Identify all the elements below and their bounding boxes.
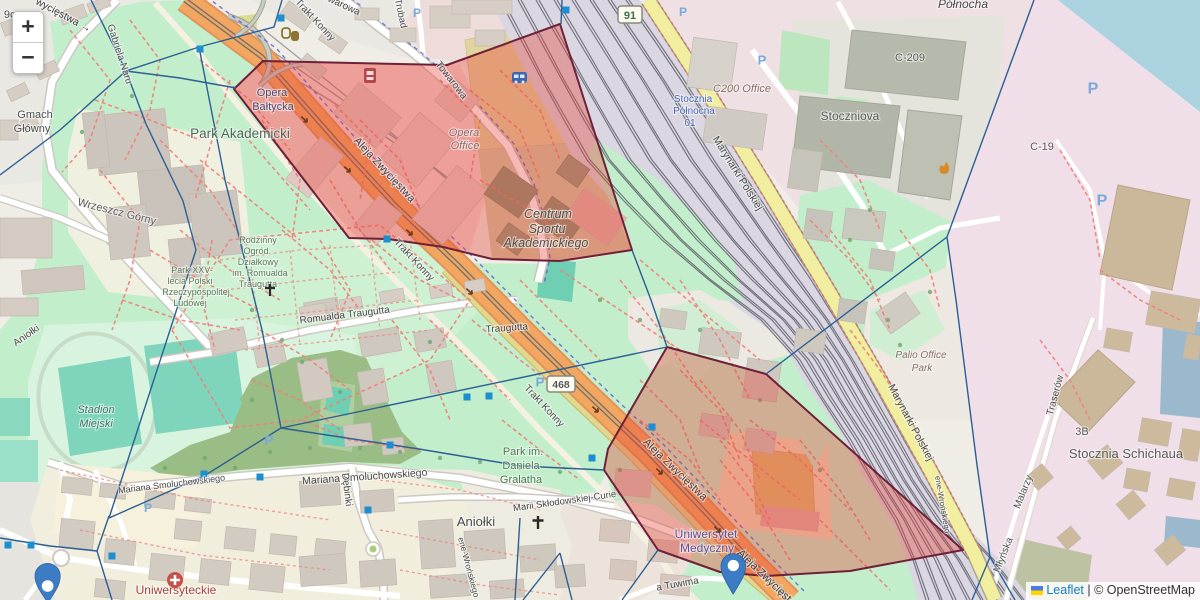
- svg-text:P: P: [1097, 193, 1108, 210]
- svg-text:Akademickiego: Akademickiego: [503, 236, 589, 250]
- svg-text:Opera: Opera: [449, 127, 480, 139]
- svg-text:Uniwersytet: Uniwersytet: [675, 527, 738, 541]
- svg-text:im. Romualda: im. Romualda: [232, 268, 288, 278]
- svg-text:Daniela: Daniela: [502, 460, 540, 472]
- svg-text:01: 01: [684, 118, 696, 129]
- svg-text:Park: Park: [912, 363, 934, 374]
- svg-text:Rzeczypospolitej: Rzeczypospolitej: [162, 287, 230, 297]
- svg-text:P: P: [679, 5, 687, 19]
- svg-text:Bałtycka: Bałtycka: [252, 101, 294, 113]
- svg-text:Opera: Opera: [257, 87, 288, 99]
- svg-text:Park XXV-: Park XXV-: [171, 265, 213, 275]
- svg-text:P: P: [1088, 81, 1099, 98]
- svg-text:3B: 3B: [1075, 426, 1088, 438]
- svg-text:Sportu: Sportu: [529, 222, 566, 236]
- svg-text:91: 91: [624, 10, 636, 22]
- svg-text:Stoczniova: Stoczniova: [821, 109, 880, 123]
- svg-text:Ogród: Ogród: [243, 246, 268, 256]
- svg-text:Rodzinny: Rodzinny: [239, 235, 277, 245]
- svg-text:Ludowej: Ludowej: [173, 298, 207, 308]
- svg-text:C200 Office: C200 Office: [713, 83, 771, 95]
- svg-text:C-19: C-19: [1030, 141, 1054, 153]
- svg-text:Centrum: Centrum: [524, 207, 572, 221]
- svg-text:lecia Polski: lecia Polski: [167, 276, 212, 286]
- svg-text:Północha: Północha: [938, 0, 988, 11]
- svg-text:Główny: Główny: [14, 123, 51, 135]
- svg-text:P: P: [758, 53, 767, 68]
- svg-text:Gralatha: Gralatha: [500, 474, 543, 486]
- svg-text:468: 468: [552, 379, 570, 391]
- svg-text:Stocznia Schichaua: Stocznia Schichaua: [1069, 446, 1184, 461]
- svg-text:Medyczny: Medyczny: [680, 541, 734, 555]
- svg-text:P: P: [264, 432, 273, 448]
- svg-text:P: P: [144, 501, 152, 515]
- svg-text:Park Akademicki: Park Akademicki: [190, 126, 290, 141]
- svg-text:Stadion: Stadion: [77, 404, 114, 416]
- svg-text:Północna: Północna: [673, 106, 715, 117]
- svg-text:Aniołki: Aniołki: [457, 514, 495, 529]
- svg-text:Palio Office: Palio Office: [895, 350, 947, 361]
- svg-text:P: P: [413, 6, 421, 20]
- svg-text:Gmach: Gmach: [17, 109, 52, 121]
- svg-text:Park im.: Park im.: [503, 446, 543, 458]
- svg-text:C-209: C-209: [895, 52, 925, 64]
- svg-text:Działkowy: Działkowy: [238, 257, 279, 267]
- svg-text:Miejski: Miejski: [79, 418, 113, 430]
- svg-text:Office: Office: [451, 140, 480, 152]
- svg-text:P: P: [536, 375, 545, 390]
- svg-text:Stocznia: Stocznia: [674, 94, 713, 105]
